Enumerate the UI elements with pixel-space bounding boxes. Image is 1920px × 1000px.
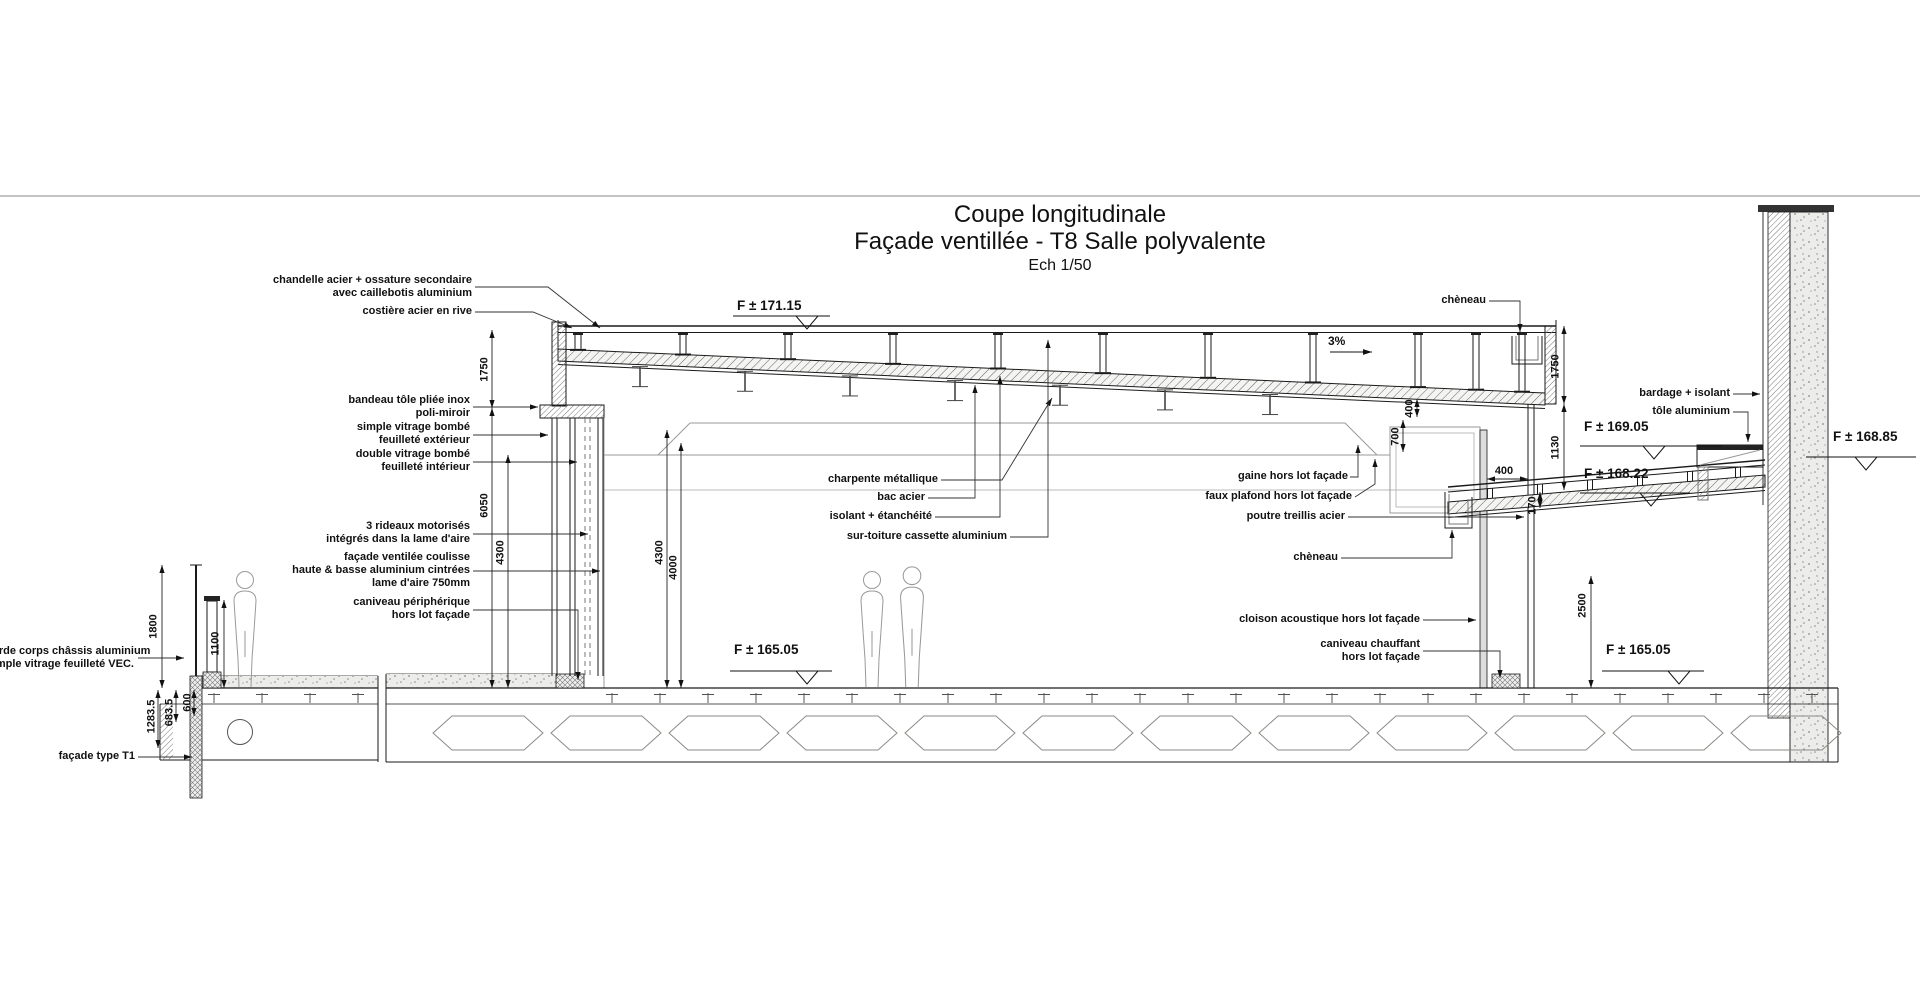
dim-600: 600 bbox=[182, 681, 195, 725]
title-line: Coupe longitudinale bbox=[710, 201, 1410, 228]
dim-1100: 1100 bbox=[210, 622, 223, 666]
annotation-line: simple vitrage bombé bbox=[280, 421, 470, 434]
annotation-line: tôle aluminium bbox=[1530, 405, 1730, 418]
annotation-cheneau-interieur: chèneau bbox=[1138, 551, 1338, 564]
dim-170: 170 bbox=[1527, 484, 1540, 528]
title-line: Façade ventillée - T8 Salle polyvalente bbox=[710, 228, 1410, 256]
right-wall bbox=[1758, 205, 1834, 762]
slope-label: 3% bbox=[1328, 334, 1345, 348]
dim-1283-5: 1283.5 bbox=[146, 695, 159, 739]
annotation-line: haute & basse aluminium cintrées bbox=[230, 564, 470, 577]
title-scale: Ech 1/50 bbox=[710, 256, 1410, 275]
dim-4300-centre: 4300 bbox=[654, 531, 667, 575]
costiere-edge bbox=[552, 322, 566, 406]
annotation-line: faux plafond hors lot façade bbox=[1152, 490, 1352, 503]
annotation-line: cloison acoustique hors lot façade bbox=[1170, 613, 1420, 626]
person-figure bbox=[861, 572, 883, 688]
annotation-bardage: bardage + isolant bbox=[1530, 387, 1730, 400]
annotation-line: garde corps châssis aluminium bbox=[0, 645, 134, 658]
wall-core bbox=[1790, 212, 1828, 762]
dim-2500: 2500 bbox=[1577, 584, 1590, 628]
annotation-line: caniveau périphérique bbox=[280, 596, 470, 609]
level-terrasse-bas: F ± 168.22 bbox=[1584, 466, 1648, 481]
bandeau-inox bbox=[540, 405, 604, 418]
annotation-line: bardage + isolant bbox=[1530, 387, 1730, 400]
dim-683-5: 683.5 bbox=[164, 691, 177, 735]
annotation-line: façade ventilée coulisse bbox=[230, 551, 470, 564]
annotation-line: chèneau bbox=[1286, 294, 1486, 307]
annotation-facade-t1: façade type T1 bbox=[15, 750, 135, 763]
dim-1130: 1130 bbox=[1550, 426, 1563, 470]
annotation-line: avec caillebotis aluminium bbox=[200, 287, 472, 300]
bardage-layer bbox=[1768, 212, 1790, 718]
annotation-simple-vitrage: simple vitrage bombé feuilleté extérieur bbox=[280, 421, 470, 447]
annotation-line: caniveau chauffant bbox=[1220, 638, 1420, 651]
caniveau-chauffant-box bbox=[1492, 674, 1520, 688]
annotation-gaine: gaine hors lot façade bbox=[1152, 470, 1348, 483]
dim-1750-droite: 1750 bbox=[1550, 345, 1563, 389]
annotation-costiere: costière acier en rive bbox=[232, 305, 472, 318]
annotation-line: gaine hors lot façade bbox=[1152, 470, 1348, 483]
annotation-chandelle: chandelle acier + ossature secondaire av… bbox=[200, 274, 472, 300]
slab-void-circle bbox=[228, 720, 253, 745]
level-terrasse-mur: F ± 168.85 bbox=[1833, 429, 1897, 444]
dim-700: 700 bbox=[1390, 415, 1403, 459]
annotation-line: isolant + étanchéité bbox=[732, 510, 932, 523]
annotation-line: double vitrage bombé bbox=[280, 448, 470, 461]
annotation-line: intégrés dans la lame d'aire bbox=[260, 533, 470, 546]
annotation-caniveau-chauffant: caniveau chauffant hors lot façade bbox=[1220, 638, 1420, 664]
section-linework bbox=[0, 0, 1920, 1000]
drawing-canvas: Coupe longitudinale Façade ventillée - T… bbox=[0, 0, 1920, 1000]
annotation-line: feuilleté extérieur bbox=[280, 434, 470, 447]
annotation-caniveau-peripherique: caniveau périphérique hors lot façade bbox=[280, 596, 470, 622]
annotation-bac-acier: bac acier bbox=[725, 491, 925, 504]
annotation-faux-plafond: faux plafond hors lot façade bbox=[1152, 490, 1352, 503]
annotation-line: façade type T1 bbox=[15, 750, 135, 763]
annotation-line: hors lot façade bbox=[280, 609, 470, 622]
drawing-title: Coupe longitudinale Façade ventillée - T… bbox=[710, 201, 1410, 275]
annotation-line: lame d'aire 750mm bbox=[230, 577, 470, 590]
annotation-line: feuilleté intérieur bbox=[280, 461, 470, 474]
annotation-line: chèneau bbox=[1138, 551, 1338, 564]
person-figure bbox=[901, 567, 924, 687]
annotation-garde-corps: garde corps châssis aluminium simple vit… bbox=[0, 645, 134, 671]
annotation-double-vitrage: double vitrage bombé feuilleté intérieur bbox=[280, 448, 470, 474]
annotation-charpente: charpente métallique bbox=[738, 473, 938, 486]
dim-4000: 4000 bbox=[668, 546, 681, 590]
annotation-line: bac acier bbox=[725, 491, 925, 504]
annotation-isolant: isolant + étanchéité bbox=[732, 510, 932, 523]
annotation-line: poli-miroir bbox=[280, 407, 470, 420]
annotation-sur-toiture: sur-toiture cassette aluminium bbox=[807, 530, 1007, 543]
level-plancher: F ± 165.05 bbox=[734, 642, 798, 657]
level-terrasse-haut: F ± 169.05 bbox=[1584, 419, 1648, 434]
annotation-line: bandeau tôle pliée inox bbox=[280, 394, 470, 407]
annotation-tole-aluminium: tôle aluminium bbox=[1530, 405, 1730, 418]
annotation-line: poutre treillis acier bbox=[1145, 510, 1345, 523]
dim-6050: 6050 bbox=[479, 484, 492, 528]
annotation-line: sur-toiture cassette aluminium bbox=[807, 530, 1007, 543]
level-plancher-droit: F ± 165.05 bbox=[1606, 642, 1670, 657]
annotation-line: simple vitrage feuilleté VEC. bbox=[0, 658, 134, 671]
annotation-line: charpente métallique bbox=[738, 473, 938, 486]
partition-and-facade bbox=[1480, 404, 1534, 688]
annotation-poutre-treillis: poutre treillis acier bbox=[1145, 510, 1345, 523]
annotation-cloison: cloison acoustique hors lot façade bbox=[1170, 613, 1420, 626]
annotation-line: chandelle acier + ossature secondaire bbox=[200, 274, 472, 287]
annotation-line: 3 rideaux motorisés bbox=[260, 520, 470, 533]
level-toiture: F ± 171.15 bbox=[737, 298, 801, 313]
annotation-facade-ventilee: façade ventilée coulisse haute & basse a… bbox=[230, 551, 470, 590]
dim-1750-gauche: 1750 bbox=[479, 348, 492, 392]
annotation-line: costière acier en rive bbox=[232, 305, 472, 318]
dim-1800: 1800 bbox=[148, 605, 161, 649]
dim-400-plafond: 400 bbox=[1404, 387, 1417, 431]
annotation-line: hors lot façade bbox=[1220, 651, 1420, 664]
annotation-cheneau-toiture: chèneau bbox=[1286, 294, 1486, 307]
annotation-rideaux: 3 rideaux motorisés intégrés dans la lam… bbox=[260, 520, 470, 546]
terrace-roof bbox=[1445, 445, 1765, 528]
dim-400-mur: 400 bbox=[1482, 465, 1526, 477]
annotation-bandeau: bandeau tôle pliée inox poli-miroir bbox=[280, 394, 470, 420]
dim-4300-gauche: 4300 bbox=[495, 531, 508, 575]
caniveau-peripherique-box bbox=[556, 674, 584, 688]
